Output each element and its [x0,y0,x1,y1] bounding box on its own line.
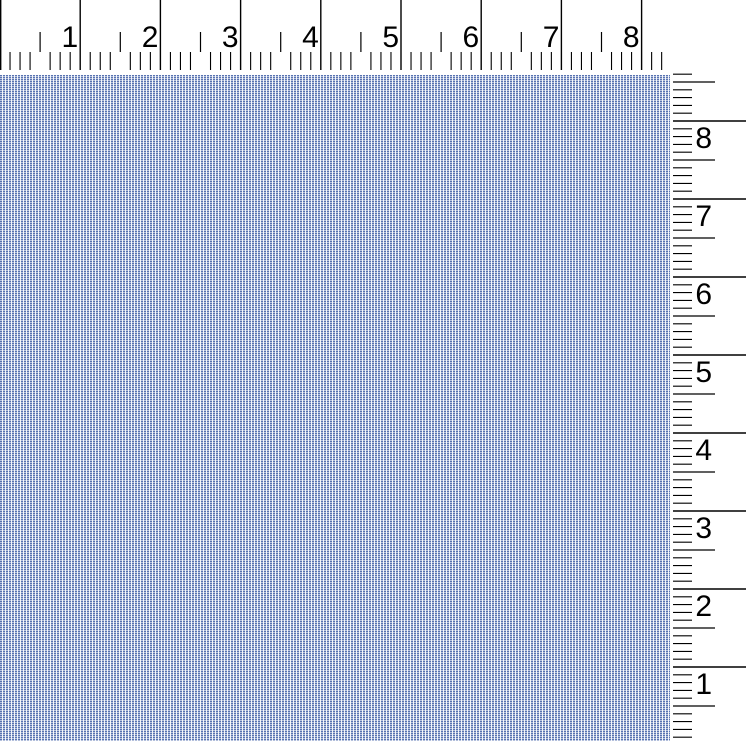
right-ruler-number-6: 6 [695,278,712,311]
top-ruler-number-6: 6 [463,21,480,54]
fabric-actual-size-preview: 12345678 12345678 [0,0,746,741]
horizontal-inch-ruler: 12345678 [1,0,662,70]
right-ruler-number-3: 3 [695,512,712,545]
top-ruler-number-3: 3 [222,21,239,54]
right-ruler-number-1: 1 [695,668,712,701]
top-ruler-number-2: 2 [142,21,159,54]
right-ruler-number-4: 4 [695,434,712,467]
right-ruler-number-8: 8 [695,122,712,155]
top-ruler-number-4: 4 [302,21,319,54]
top-ruler-number-1: 1 [62,21,79,54]
top-ruler-number-7: 7 [543,21,560,54]
right-ruler-number-7: 7 [695,200,712,233]
right-ruler-number-2: 2 [695,590,712,623]
top-ruler-number-8: 8 [623,21,640,54]
right-ruler-number-5: 5 [695,356,712,389]
ruler-overlay: 12345678 12345678 [0,0,746,741]
top-ruler-number-5: 5 [382,21,399,54]
vertical-inch-ruler: 12345678 [673,74,746,737]
